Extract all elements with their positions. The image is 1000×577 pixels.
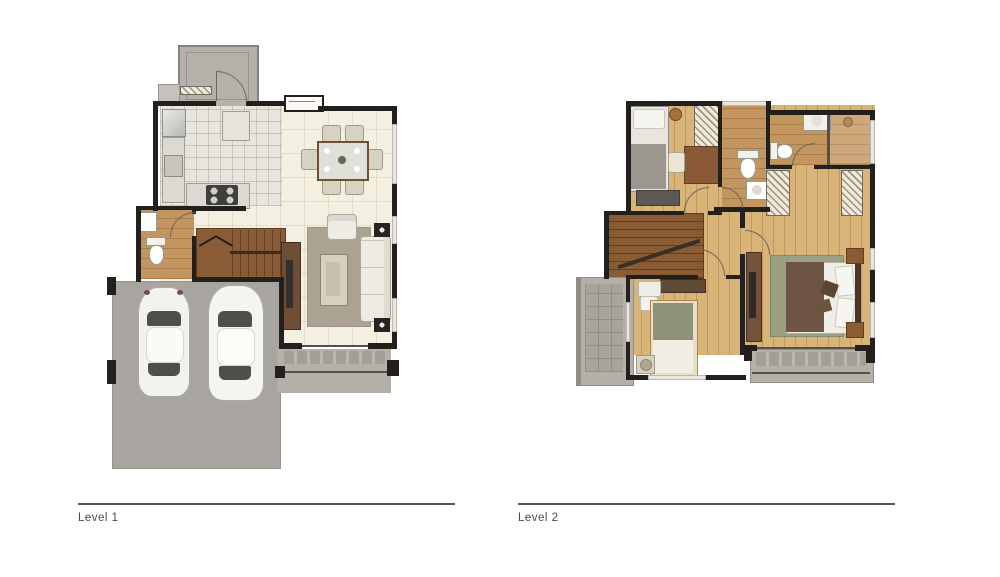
shower-head-icon <box>843 117 853 127</box>
window <box>626 302 630 342</box>
wall <box>626 101 631 213</box>
desk-chair <box>668 152 685 173</box>
wall <box>768 110 875 115</box>
floor-plan-level-2 <box>0 0 1000 577</box>
wall <box>604 211 609 279</box>
bed-single-sheet <box>653 340 693 373</box>
level2-caption: Level 2 <box>518 512 559 524</box>
window <box>870 302 875 338</box>
balcony-rear-railing <box>752 372 870 374</box>
dresser <box>660 279 706 293</box>
wall <box>740 211 745 228</box>
wall <box>740 345 757 351</box>
tv-screen <box>749 272 756 318</box>
window <box>870 120 875 164</box>
wall <box>814 165 875 169</box>
wall <box>766 110 770 167</box>
level1-divider <box>78 503 455 505</box>
balcony-left-pavers <box>585 284 623 372</box>
shower-divider <box>827 112 830 165</box>
wall <box>766 165 792 169</box>
wall <box>604 211 684 215</box>
wall <box>718 101 722 187</box>
bed-single-blanket <box>631 144 666 189</box>
wall <box>726 275 744 279</box>
wall-decor-round <box>669 108 682 121</box>
wall <box>855 345 875 351</box>
window <box>722 101 768 106</box>
bed-pillow <box>834 265 855 297</box>
desk <box>638 281 661 297</box>
bed-single-pillow <box>633 109 665 129</box>
wall <box>740 254 745 355</box>
bathroom-sink <box>746 181 768 200</box>
wall <box>626 101 722 106</box>
dresser <box>636 190 680 206</box>
bed-single-blanket <box>653 303 693 340</box>
window <box>870 248 875 270</box>
level1-caption: Level 1 <box>78 512 119 524</box>
wardrobe <box>694 104 720 150</box>
wall <box>626 275 698 279</box>
sliding-door <box>757 347 855 349</box>
window <box>648 375 706 380</box>
table-lamp <box>640 359 652 371</box>
desk <box>684 146 719 184</box>
balcony-rear-pavers <box>756 352 866 366</box>
floor-plan-sheet: Level 1 Level 2 <box>0 0 1000 577</box>
nightstand <box>846 248 864 264</box>
toilet-bowl <box>740 158 756 179</box>
wardrobe <box>841 170 863 216</box>
nightstand <box>846 322 864 338</box>
bed-double-blanket <box>786 262 824 332</box>
toilet-bowl <box>777 144 793 159</box>
level2-divider <box>518 503 895 505</box>
